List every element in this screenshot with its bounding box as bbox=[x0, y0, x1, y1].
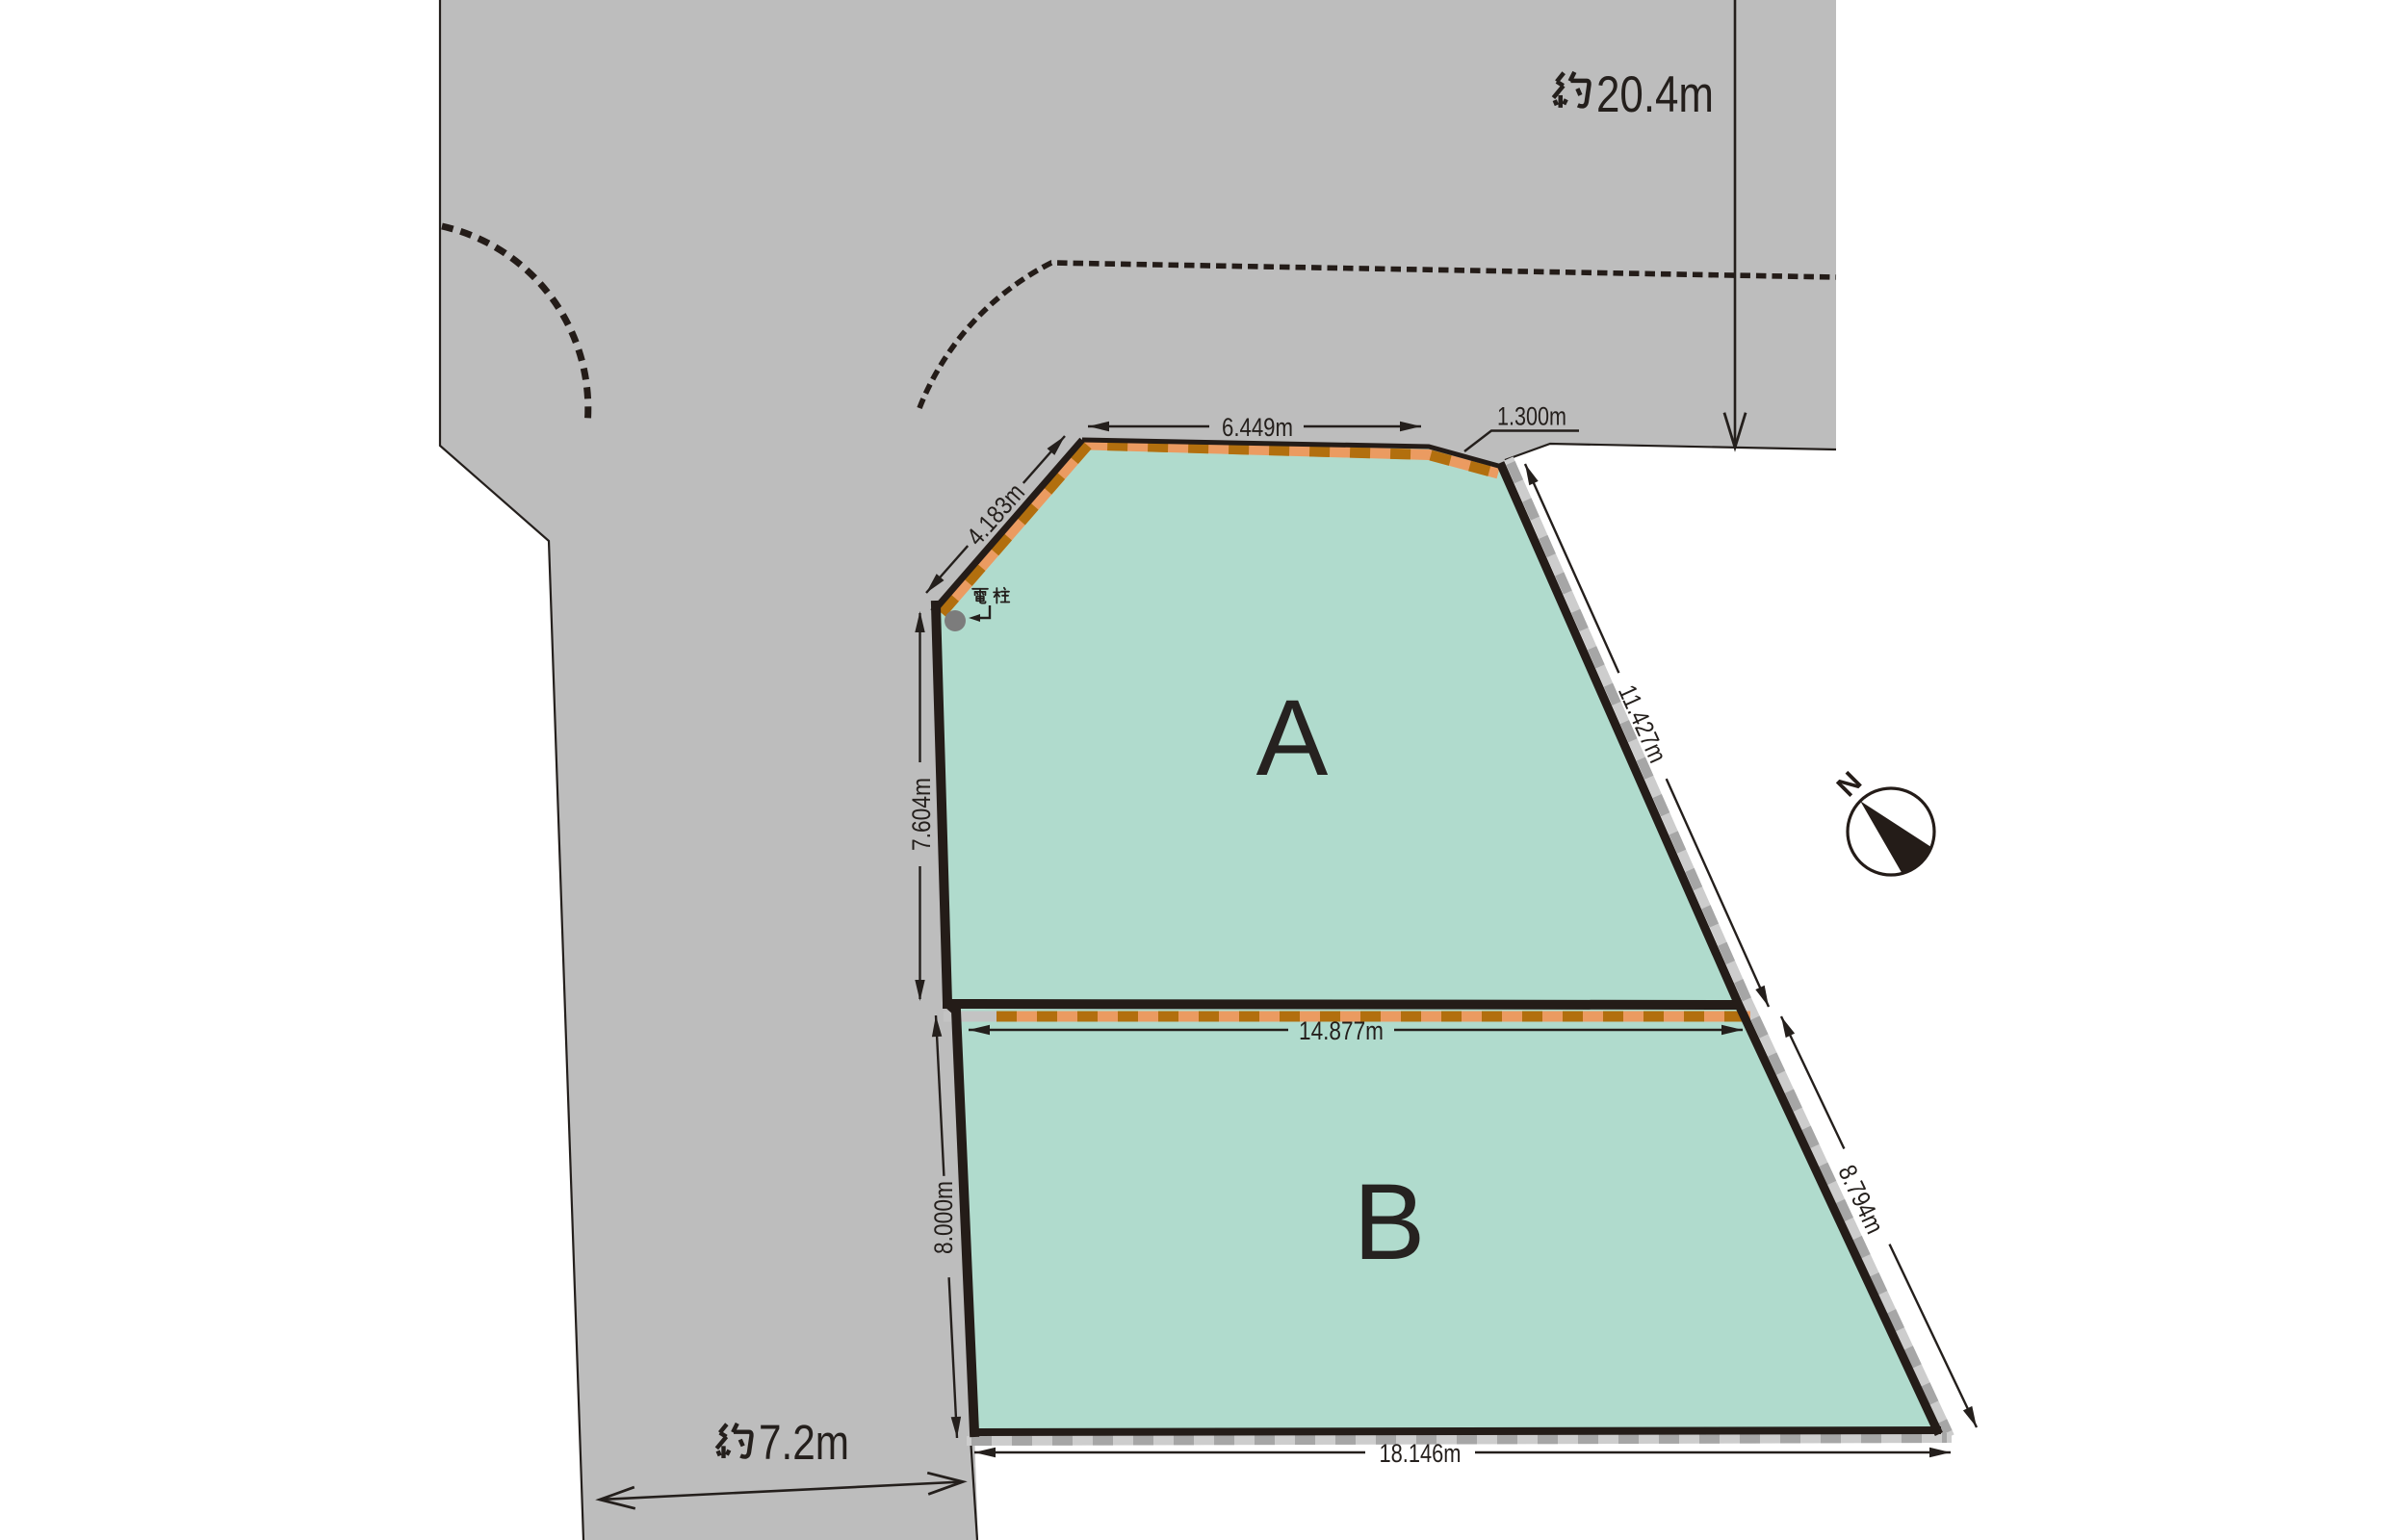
svg-text:6.449m: 6.449m bbox=[1222, 413, 1293, 442]
svg-text:7.2m: 7.2m bbox=[759, 1415, 849, 1470]
svg-text:14.877m: 14.877m bbox=[1299, 1016, 1384, 1045]
svg-text:18.146m: 18.146m bbox=[1380, 1439, 1462, 1468]
svg-text:B: B bbox=[1354, 1162, 1426, 1282]
svg-text:20.4m: 20.4m bbox=[1596, 66, 1714, 123]
svg-text:A: A bbox=[1256, 678, 1329, 798]
svg-text:1.300m: 1.300m bbox=[1497, 402, 1566, 431]
svg-text:8.000m: 8.000m bbox=[929, 1181, 958, 1254]
svg-text:7.604m: 7.604m bbox=[907, 778, 936, 851]
